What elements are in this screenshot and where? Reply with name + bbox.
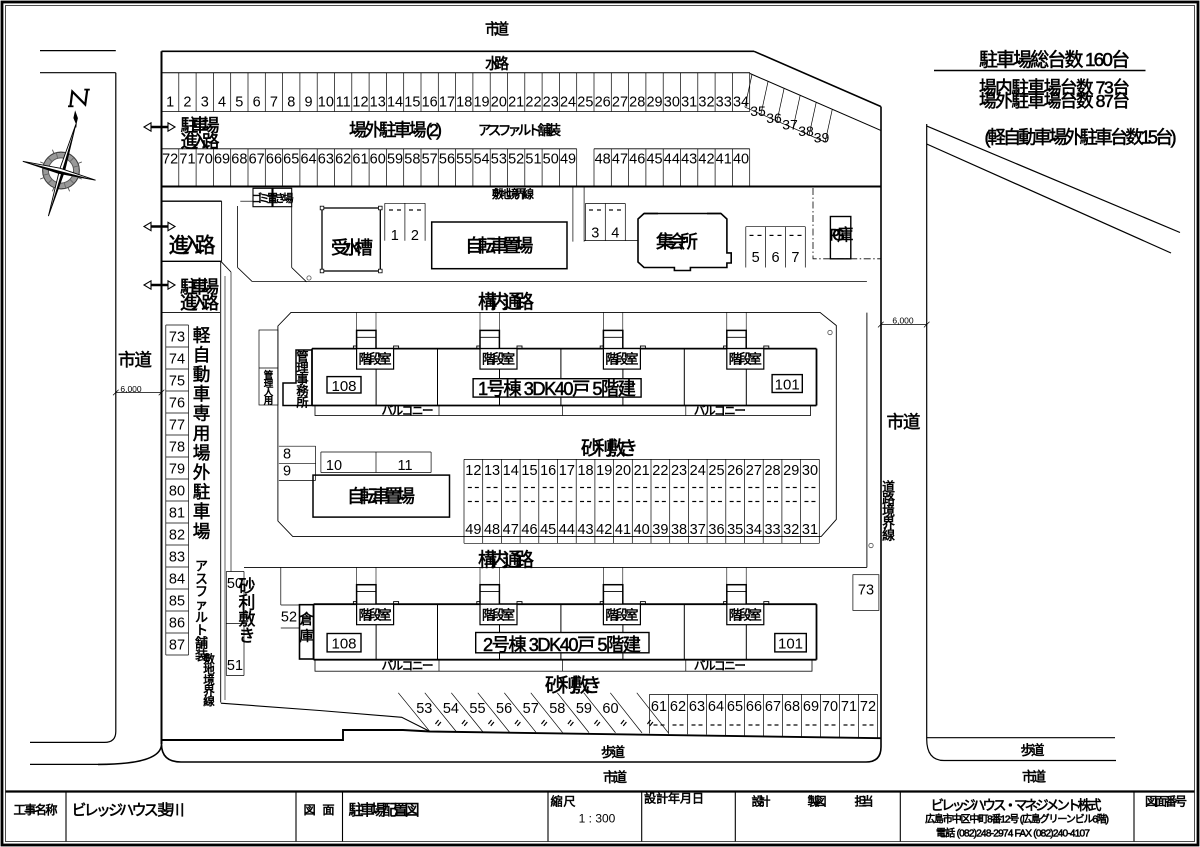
svg-text:場外駐車場台数 87台: 場外駐車場台数 87台 bbox=[979, 91, 1130, 111]
svg-text:31: 31 bbox=[681, 95, 697, 111]
svg-text:11: 11 bbox=[336, 95, 351, 111]
svg-text:62: 62 bbox=[335, 152, 351, 168]
svg-text:58: 58 bbox=[404, 152, 420, 168]
svg-text:40: 40 bbox=[634, 522, 650, 538]
svg-text:階段室: 階段室 bbox=[605, 607, 638, 622]
svg-text:30: 30 bbox=[664, 95, 680, 111]
svg-text:14: 14 bbox=[503, 463, 519, 479]
svg-text:69: 69 bbox=[214, 152, 230, 168]
svg-text:19: 19 bbox=[596, 463, 612, 479]
svg-text:12: 12 bbox=[352, 95, 368, 111]
svg-text:階段室: 階段室 bbox=[359, 352, 392, 367]
svg-text:108: 108 bbox=[331, 635, 356, 652]
svg-text:49: 49 bbox=[560, 152, 576, 168]
svg-text:46: 46 bbox=[521, 522, 537, 538]
svg-text:自: 自 bbox=[193, 345, 211, 365]
svg-text:1: 1 bbox=[391, 228, 399, 244]
svg-text:37: 37 bbox=[690, 522, 706, 538]
svg-text:場: 場 bbox=[193, 443, 211, 463]
svg-text:担当: 担当 bbox=[855, 794, 874, 808]
svg-text:1 : 300: 1 : 300 bbox=[579, 811, 616, 825]
svg-text:28: 28 bbox=[764, 463, 780, 479]
svg-text:44: 44 bbox=[664, 152, 680, 168]
svg-text:動: 動 bbox=[193, 365, 211, 385]
svg-text:市 道: 市 道 bbox=[1022, 768, 1046, 784]
svg-text:13: 13 bbox=[370, 95, 386, 111]
svg-text:66: 66 bbox=[266, 152, 282, 168]
svg-text:37: 37 bbox=[782, 116, 798, 132]
svg-text:60: 60 bbox=[602, 701, 618, 717]
svg-text:72: 72 bbox=[860, 699, 876, 715]
svg-text:5: 5 bbox=[235, 95, 243, 111]
svg-text:進入路: 進入路 bbox=[181, 131, 220, 151]
svg-text:8: 8 bbox=[287, 95, 295, 111]
svg-text:市 道: 市 道 bbox=[485, 21, 509, 38]
svg-text:17: 17 bbox=[439, 95, 455, 111]
svg-text:庫: 庫 bbox=[299, 628, 313, 645]
svg-text:自転車置場: 自転車置場 bbox=[465, 236, 533, 256]
svg-text:9: 9 bbox=[283, 464, 291, 480]
svg-text:集会所: 集会所 bbox=[656, 232, 698, 252]
svg-text:7: 7 bbox=[270, 95, 278, 111]
svg-text:57: 57 bbox=[422, 152, 438, 168]
svg-text:34: 34 bbox=[746, 522, 762, 538]
svg-text:45: 45 bbox=[646, 152, 662, 168]
svg-text:階段室: 階段室 bbox=[359, 607, 392, 622]
svg-text:42: 42 bbox=[596, 522, 612, 538]
svg-text:29: 29 bbox=[646, 95, 662, 111]
svg-text:15: 15 bbox=[521, 463, 537, 479]
svg-text:45: 45 bbox=[540, 522, 556, 538]
svg-text:32: 32 bbox=[783, 522, 799, 538]
svg-text:軽: 軽 bbox=[193, 325, 211, 345]
svg-text:43: 43 bbox=[681, 152, 697, 168]
svg-text:62: 62 bbox=[670, 699, 686, 715]
svg-text:11: 11 bbox=[397, 458, 412, 474]
svg-text:き: き bbox=[239, 627, 256, 646]
svg-text:図面番号: 図面番号 bbox=[1145, 794, 1187, 808]
svg-text:47: 47 bbox=[612, 152, 628, 168]
svg-text:3: 3 bbox=[591, 226, 599, 242]
svg-text:87: 87 bbox=[169, 638, 185, 654]
svg-text:10: 10 bbox=[318, 95, 334, 111]
svg-text:8: 8 bbox=[283, 447, 291, 463]
svg-text:階段室: 階段室 bbox=[482, 607, 515, 622]
svg-text:32: 32 bbox=[698, 95, 714, 111]
svg-text:12: 12 bbox=[465, 463, 481, 479]
svg-text:所: 所 bbox=[296, 395, 308, 409]
svg-text:54: 54 bbox=[443, 701, 459, 717]
svg-text:自転車置場: 自転車置場 bbox=[347, 487, 415, 507]
svg-text:57: 57 bbox=[523, 701, 539, 717]
svg-text:4: 4 bbox=[611, 226, 619, 242]
svg-text:108: 108 bbox=[331, 378, 356, 395]
svg-text:16: 16 bbox=[540, 463, 556, 479]
svg-text:68: 68 bbox=[784, 699, 800, 715]
svg-text:市 道: 市 道 bbox=[118, 350, 152, 370]
svg-text:65: 65 bbox=[727, 699, 743, 715]
svg-text:6: 6 bbox=[771, 250, 779, 266]
svg-text:101: 101 bbox=[775, 376, 800, 393]
svg-text:68: 68 bbox=[231, 152, 247, 168]
svg-text:階段室: 階段室 bbox=[729, 607, 762, 622]
svg-text:16: 16 bbox=[422, 95, 438, 111]
svg-text:バルコニー: バルコニー bbox=[382, 405, 434, 418]
svg-text:54: 54 bbox=[473, 152, 489, 168]
svg-text:38: 38 bbox=[671, 522, 687, 538]
svg-text:51: 51 bbox=[227, 658, 243, 674]
svg-text:線: 線 bbox=[882, 528, 895, 543]
svg-text:場外駐車場 (2): 場外駐車場 (2) bbox=[349, 120, 442, 140]
svg-text:73: 73 bbox=[858, 583, 874, 599]
svg-text:42: 42 bbox=[698, 152, 714, 168]
svg-text:78: 78 bbox=[169, 440, 185, 456]
svg-text:38: 38 bbox=[798, 123, 814, 139]
svg-text:30: 30 bbox=[802, 463, 818, 479]
svg-text:67: 67 bbox=[249, 152, 265, 168]
svg-text:駐車場配置図: 駐車場配置図 bbox=[349, 802, 420, 819]
svg-text:20: 20 bbox=[615, 463, 631, 479]
svg-text:階段室: 階段室 bbox=[482, 352, 515, 367]
svg-text:22: 22 bbox=[525, 95, 541, 111]
svg-text:バルコニー: バルコニー bbox=[694, 405, 746, 418]
svg-text:101: 101 bbox=[778, 635, 803, 652]
svg-text:59: 59 bbox=[387, 152, 403, 168]
svg-text:設計年月日: 設計年月日 bbox=[644, 790, 704, 805]
svg-text:64: 64 bbox=[300, 152, 316, 168]
svg-text:縮 尺: 縮 尺 bbox=[551, 793, 576, 808]
svg-text:85: 85 bbox=[169, 594, 185, 610]
svg-text:84: 84 bbox=[169, 572, 185, 588]
svg-text:69: 69 bbox=[803, 699, 819, 715]
svg-text:用: 用 bbox=[193, 423, 211, 443]
svg-text:駐: 駐 bbox=[193, 482, 211, 502]
svg-text:75: 75 bbox=[169, 374, 185, 390]
svg-text:バルコニー: バルコニー bbox=[694, 660, 746, 673]
svg-text:47: 47 bbox=[503, 522, 519, 538]
svg-text:64: 64 bbox=[708, 699, 724, 715]
svg-text:専: 専 bbox=[193, 404, 211, 424]
svg-text:40: 40 bbox=[733, 152, 749, 168]
svg-text:33: 33 bbox=[764, 522, 780, 538]
svg-text:5: 5 bbox=[752, 250, 760, 266]
svg-text:歩 道: 歩 道 bbox=[601, 745, 625, 760]
svg-text:7: 7 bbox=[791, 250, 799, 266]
svg-text:60: 60 bbox=[370, 152, 386, 168]
svg-text:48: 48 bbox=[595, 152, 611, 168]
svg-text:66: 66 bbox=[746, 699, 762, 715]
svg-text:2: 2 bbox=[411, 228, 419, 244]
svg-text:55: 55 bbox=[456, 152, 472, 168]
svg-text:20: 20 bbox=[491, 95, 507, 111]
svg-text:86: 86 bbox=[169, 616, 185, 632]
svg-text:14: 14 bbox=[387, 95, 403, 111]
svg-text:バルコニー: バルコニー bbox=[382, 660, 434, 673]
svg-text:図 面: 図 面 bbox=[304, 803, 335, 817]
svg-text:83: 83 bbox=[169, 550, 185, 566]
svg-text:外: 外 bbox=[193, 463, 211, 483]
svg-text:進入路: 進入路 bbox=[180, 293, 219, 313]
svg-text:ビレッジハウス 斐川: ビレッジハウス 斐川 bbox=[72, 802, 185, 819]
svg-text:階段室: 階段室 bbox=[605, 352, 638, 367]
svg-text:26: 26 bbox=[727, 463, 743, 479]
svg-text:砂利敷き: 砂利敷き bbox=[581, 437, 638, 459]
svg-text:71: 71 bbox=[179, 152, 195, 168]
svg-text:80: 80 bbox=[169, 484, 185, 500]
svg-text:70: 70 bbox=[197, 152, 213, 168]
svg-text:76: 76 bbox=[169, 396, 185, 412]
svg-text:41: 41 bbox=[615, 522, 631, 538]
svg-text:50: 50 bbox=[543, 152, 559, 168]
svg-text:9: 9 bbox=[305, 95, 313, 111]
svg-text:駐車場総台数 160台: 駐車場総台数 160台 bbox=[979, 49, 1130, 71]
svg-text:倉: 倉 bbox=[299, 612, 313, 628]
svg-text:構内通路: 構内通路 bbox=[478, 291, 534, 313]
svg-text:56: 56 bbox=[496, 701, 512, 717]
svg-text:74: 74 bbox=[169, 352, 185, 368]
svg-text:73: 73 bbox=[169, 330, 185, 346]
svg-text:水 路: 水 路 bbox=[485, 55, 509, 72]
svg-text:61: 61 bbox=[352, 152, 368, 168]
svg-text:41: 41 bbox=[716, 152, 732, 168]
svg-text:製図: 製図 bbox=[808, 794, 827, 808]
svg-text:市 道: 市 道 bbox=[603, 769, 627, 785]
svg-text:車: 車 bbox=[193, 502, 211, 522]
svg-text:15: 15 bbox=[404, 95, 420, 111]
svg-text:市 道: 市 道 bbox=[887, 412, 921, 432]
svg-text:39: 39 bbox=[652, 522, 668, 538]
svg-text:場: 場 bbox=[193, 521, 211, 541]
svg-text:52: 52 bbox=[281, 610, 297, 626]
svg-text:43: 43 bbox=[577, 522, 593, 538]
svg-text:工事名称: 工事名称 bbox=[14, 802, 58, 817]
svg-text:31: 31 bbox=[802, 522, 818, 538]
svg-text:28: 28 bbox=[629, 95, 645, 111]
svg-text:線: 線 bbox=[203, 694, 215, 708]
svg-text:71: 71 bbox=[841, 699, 857, 715]
svg-text:56: 56 bbox=[439, 152, 455, 168]
svg-text:設計: 設計 bbox=[752, 793, 771, 808]
svg-text:2: 2 bbox=[183, 95, 191, 111]
svg-text:用: 用 bbox=[264, 396, 274, 407]
svg-text:44: 44 bbox=[559, 522, 575, 538]
svg-text:63: 63 bbox=[689, 699, 705, 715]
svg-text:24: 24 bbox=[690, 463, 706, 479]
svg-text:6,000: 6,000 bbox=[892, 316, 914, 326]
svg-text:70: 70 bbox=[822, 699, 838, 715]
svg-text:敷地境界線: 敷地境界線 bbox=[492, 187, 535, 201]
svg-text:21: 21 bbox=[508, 95, 524, 111]
svg-text:(軽自動車場外駐車台数15台): (軽自動車場外駐車台数15台) bbox=[985, 128, 1177, 148]
svg-text:アスファルト舗装: アスファルト舗装 bbox=[478, 123, 561, 138]
svg-text:36: 36 bbox=[766, 110, 782, 126]
svg-text:55: 55 bbox=[469, 701, 485, 717]
svg-text:ビレッジハウス・マネジメント株式: ビレッジハウス・マネジメント株式 bbox=[931, 798, 1103, 813]
svg-text:歩 道: 歩 道 bbox=[1021, 743, 1045, 758]
svg-text:2号棟 3DK40戸 5階建: 2号棟 3DK40戸 5階建 bbox=[483, 635, 641, 655]
svg-text:35: 35 bbox=[750, 103, 766, 119]
svg-text:13: 13 bbox=[484, 463, 500, 479]
svg-text:63: 63 bbox=[318, 152, 334, 168]
svg-text:進入路: 進入路 bbox=[169, 235, 216, 258]
svg-text:46: 46 bbox=[629, 152, 645, 168]
svg-text:39: 39 bbox=[814, 130, 830, 146]
svg-text:6: 6 bbox=[253, 95, 261, 111]
svg-text:27: 27 bbox=[612, 95, 628, 111]
svg-text:車: 車 bbox=[193, 384, 211, 404]
svg-text:電話 (082)248-2974 FAX (082)240: 電話 (082)248-2974 FAX (082)240-4107 bbox=[936, 827, 1090, 840]
svg-text:1: 1 bbox=[166, 95, 174, 111]
svg-text:81: 81 bbox=[169, 506, 185, 522]
svg-text:61: 61 bbox=[651, 699, 667, 715]
svg-text:22: 22 bbox=[652, 463, 668, 479]
svg-text:4: 4 bbox=[218, 95, 226, 111]
svg-text:52: 52 bbox=[508, 152, 524, 168]
svg-text:51: 51 bbox=[525, 152, 541, 168]
svg-text:17: 17 bbox=[559, 463, 575, 479]
svg-text:35: 35 bbox=[727, 522, 743, 538]
svg-text:23: 23 bbox=[543, 95, 559, 111]
svg-text:65: 65 bbox=[283, 152, 299, 168]
svg-text:49: 49 bbox=[465, 522, 481, 538]
svg-text:82: 82 bbox=[169, 528, 185, 544]
svg-text:26: 26 bbox=[595, 95, 611, 111]
svg-text:24: 24 bbox=[560, 95, 576, 111]
svg-text:58: 58 bbox=[549, 701, 565, 717]
svg-text:ゴミ置き場: ゴミ置き場 bbox=[252, 191, 294, 205]
svg-text:33: 33 bbox=[716, 95, 732, 111]
svg-text:23: 23 bbox=[671, 463, 687, 479]
svg-text:砂利敷き: 砂利敷き bbox=[545, 674, 602, 696]
svg-text:53: 53 bbox=[416, 701, 432, 717]
svg-text:79: 79 bbox=[169, 462, 185, 478]
svg-text:受水槽: 受水槽 bbox=[331, 238, 373, 258]
svg-text:1号棟 3DK40戸 5階建: 1号棟 3DK40戸 5階建 bbox=[478, 379, 636, 399]
svg-text:27: 27 bbox=[746, 463, 762, 479]
svg-text:29: 29 bbox=[783, 463, 799, 479]
svg-text:19: 19 bbox=[473, 95, 489, 111]
svg-text:77: 77 bbox=[169, 418, 185, 434]
svg-text:59: 59 bbox=[576, 701, 592, 717]
svg-text:18: 18 bbox=[577, 463, 593, 479]
svg-text:階段室: 階段室 bbox=[729, 352, 762, 367]
svg-text:53: 53 bbox=[491, 152, 507, 168]
svg-text:72: 72 bbox=[162, 152, 178, 168]
svg-text:34: 34 bbox=[733, 95, 749, 111]
svg-text:25: 25 bbox=[577, 95, 593, 111]
svg-text:18: 18 bbox=[456, 95, 472, 111]
svg-text:PG庫: PG庫 bbox=[829, 226, 853, 244]
svg-text:10: 10 bbox=[326, 458, 342, 474]
svg-text:48: 48 bbox=[484, 522, 500, 538]
svg-text:21: 21 bbox=[634, 463, 650, 479]
svg-text:広島市中区中町8番12号 (広島グリーンビル6階): 広島市中区中町8番12号 (広島グリーンビル6階) bbox=[925, 813, 1109, 826]
svg-text:67: 67 bbox=[765, 699, 781, 715]
svg-text:36: 36 bbox=[708, 522, 724, 538]
svg-text:3: 3 bbox=[201, 95, 209, 111]
svg-text:25: 25 bbox=[708, 463, 724, 479]
